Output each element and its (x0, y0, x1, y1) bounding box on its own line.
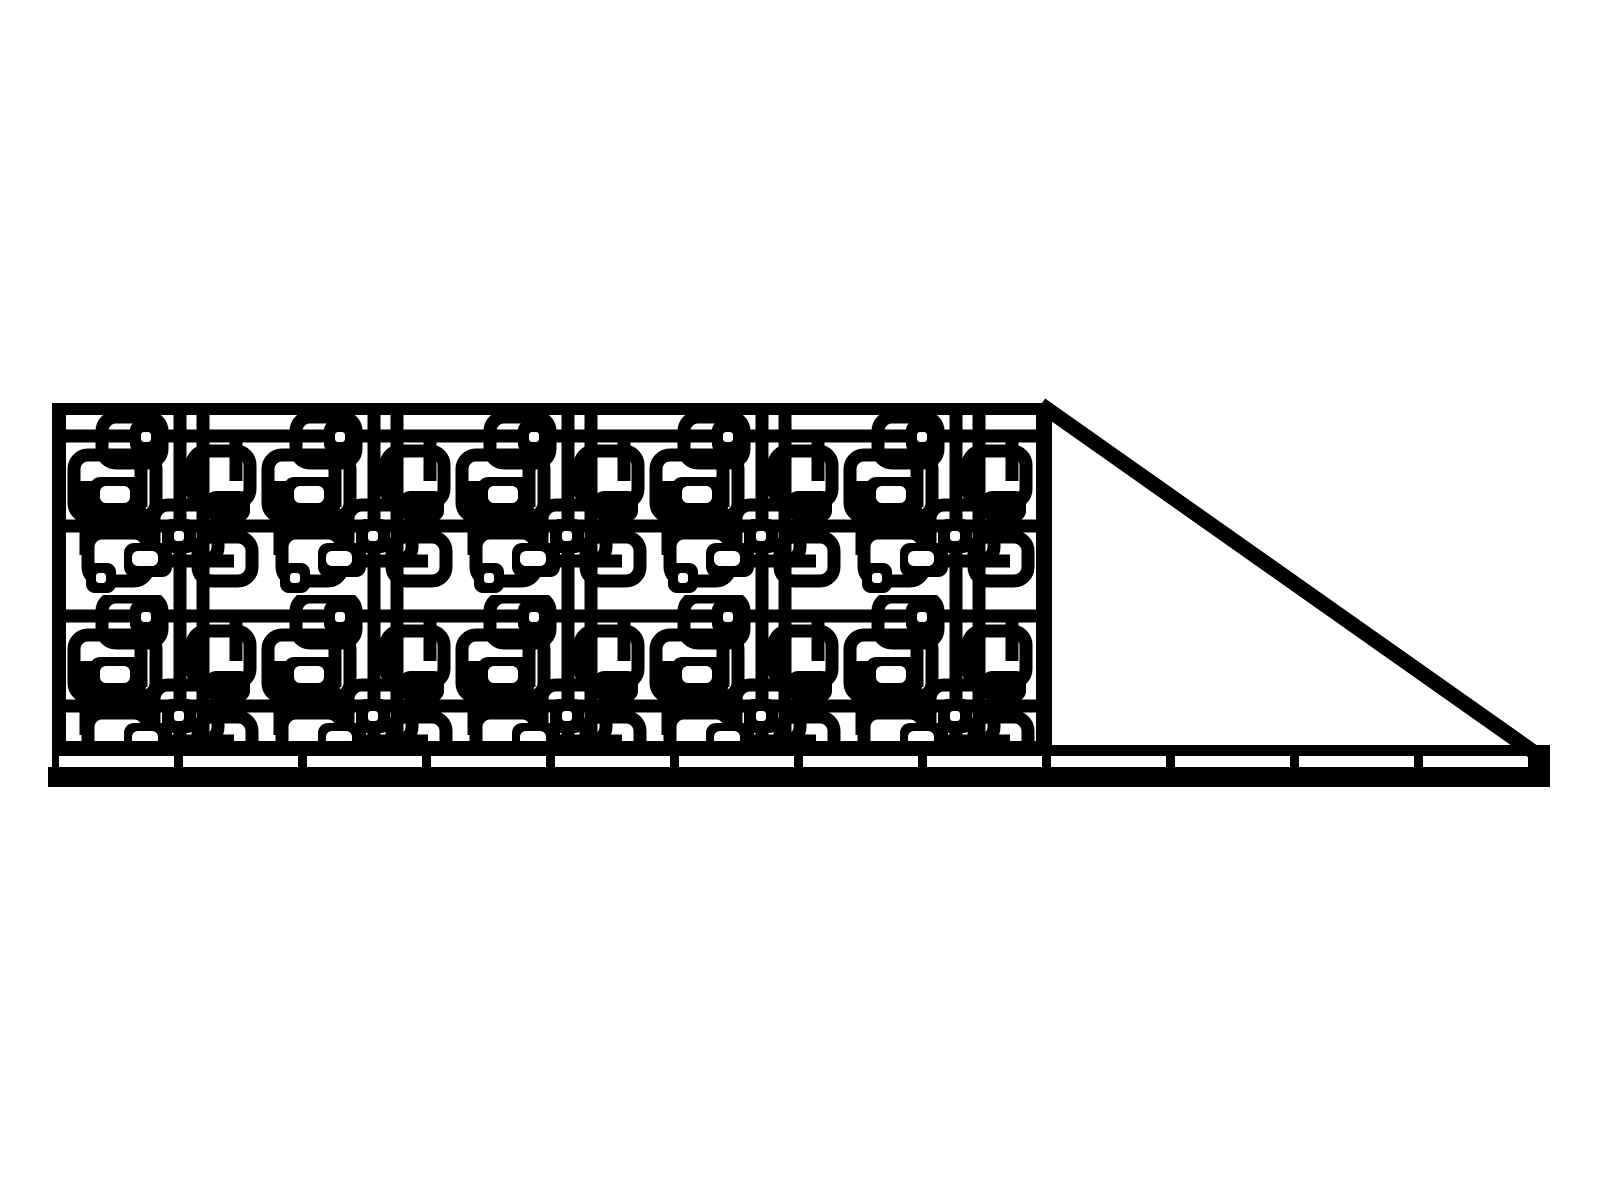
rail-divider (422, 756, 431, 768)
rail-divider (546, 756, 555, 768)
panel-border-right (1036, 403, 1052, 756)
rail-top-bar (52, 745, 1540, 756)
panel-border-top (52, 403, 1052, 415)
panel-lattice-fill (66, 415, 1036, 741)
rail-divider (298, 756, 307, 768)
brace-bar (1047, 409, 1535, 753)
panel-border-left (52, 403, 66, 756)
decorative-panel (52, 403, 1052, 756)
rail-divider (1042, 756, 1051, 768)
canvas (0, 0, 1600, 1200)
diagonal-tail-brace (1047, 409, 1535, 753)
ground-band (48, 767, 1550, 787)
rail-divider (918, 756, 927, 768)
rail-dividers (174, 756, 1423, 768)
rail-divider (174, 756, 183, 768)
rail-divider (1414, 756, 1423, 768)
rail-divider (670, 756, 679, 768)
gate-drawing (0, 0, 1600, 1200)
bottom-guide-track (48, 745, 1550, 787)
rail-divider (1166, 756, 1175, 768)
rail-divider (794, 756, 803, 768)
rail-left-cap (52, 756, 59, 768)
rail-divider (1290, 756, 1299, 768)
